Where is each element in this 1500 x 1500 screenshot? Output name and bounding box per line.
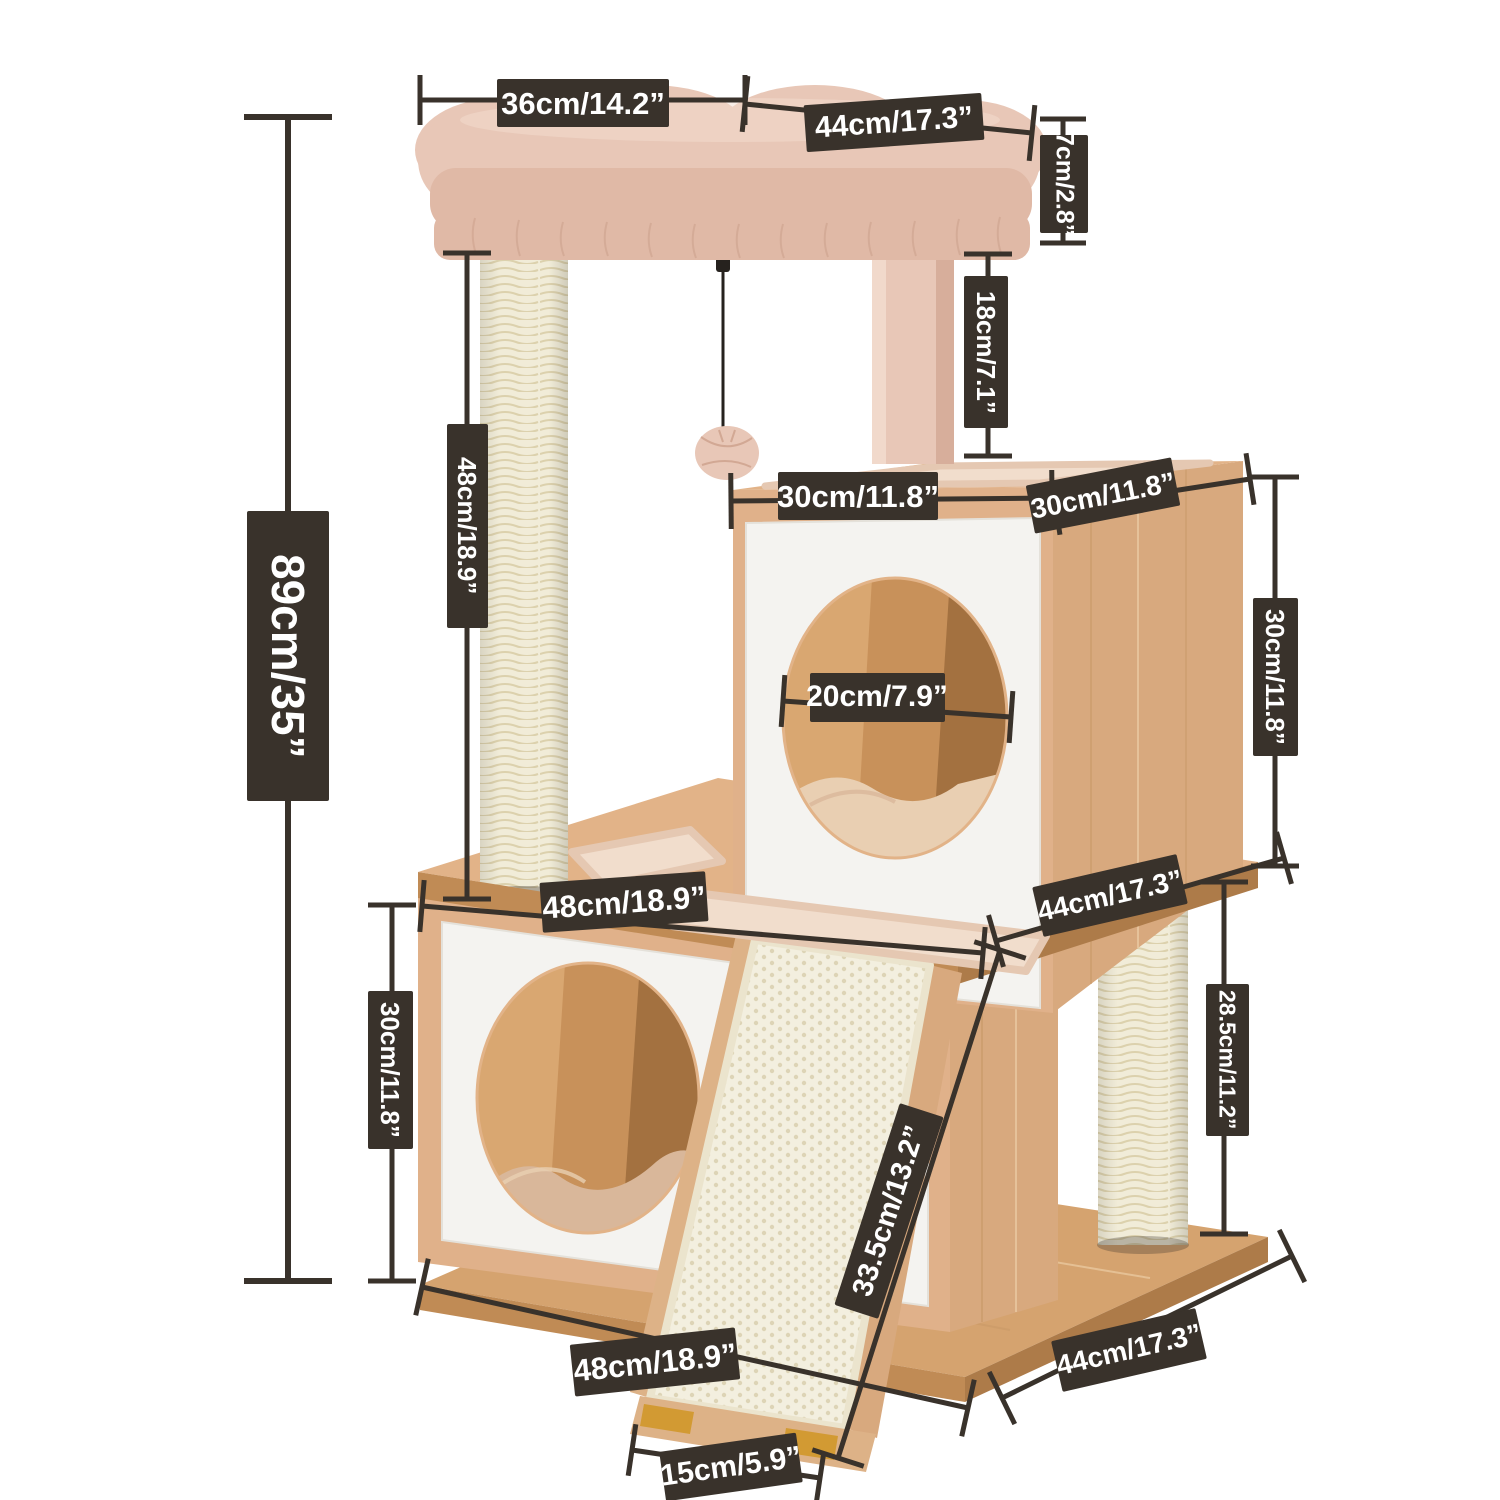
top-plush-post bbox=[872, 252, 954, 464]
product-dimension-diagram: 36cm/14.2”44cm/17.3”7cm/2.8”18cm/7.1”89c… bbox=[0, 0, 1500, 1500]
dim-tick-base-depth-end bbox=[1279, 1230, 1305, 1282]
cat-tree-illustration bbox=[0, 0, 1500, 1500]
top-cube-hole bbox=[783, 578, 1007, 860]
hanging-ball-toy bbox=[695, 256, 759, 480]
top-bed bbox=[415, 85, 1047, 260]
dim-tick-top-cube-width-start bbox=[731, 473, 732, 529]
toy-ball bbox=[695, 426, 759, 480]
left-scratching-post bbox=[478, 252, 570, 904]
dim-line-top-cube-width bbox=[731, 498, 1052, 501]
